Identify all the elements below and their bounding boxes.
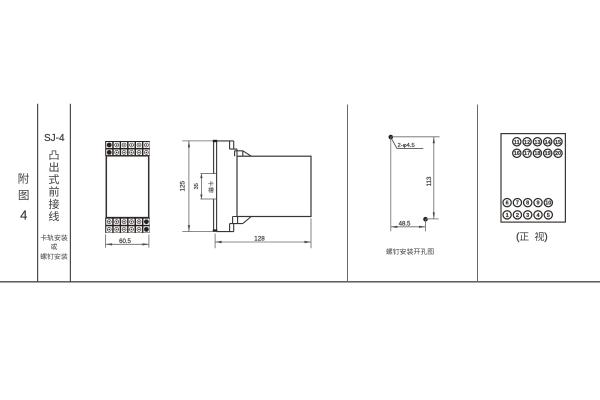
svg-text:17: 17 — [524, 151, 530, 157]
svg-text:19: 19 — [545, 151, 551, 157]
svg-text:14: 14 — [545, 140, 552, 146]
svg-text:SJ-4: SJ-4 — [44, 133, 65, 144]
svg-text:1: 1 — [506, 213, 509, 219]
svg-text:12: 12 — [524, 140, 530, 146]
svg-text:3: 3 — [526, 213, 529, 219]
svg-text:60.5: 60.5 — [119, 238, 131, 245]
svg-text:48.5: 48.5 — [399, 221, 411, 228]
svg-text:18: 18 — [534, 151, 540, 157]
svg-text:): ) — [544, 231, 548, 243]
svg-text:128: 128 — [254, 236, 265, 243]
svg-text:15: 15 — [555, 140, 561, 146]
svg-text:2: 2 — [516, 213, 519, 219]
svg-text:16: 16 — [514, 151, 520, 157]
svg-text:6: 6 — [506, 201, 509, 207]
svg-text:8: 8 — [526, 201, 529, 207]
svg-text:2-φ4.5: 2-φ4.5 — [398, 143, 416, 149]
svg-text:10: 10 — [545, 201, 551, 207]
svg-text:113: 113 — [426, 176, 433, 186]
svg-text:4: 4 — [20, 207, 27, 222]
svg-text:7: 7 — [516, 201, 519, 207]
svg-text:9: 9 — [536, 201, 539, 207]
svg-text:125: 125 — [180, 181, 187, 192]
svg-text:11: 11 — [514, 140, 520, 146]
svg-text:20: 20 — [555, 151, 561, 157]
svg-text:(: ( — [516, 231, 520, 243]
svg-text:13: 13 — [534, 140, 540, 146]
svg-text:5: 5 — [547, 213, 550, 219]
svg-text:35: 35 — [194, 183, 200, 189]
